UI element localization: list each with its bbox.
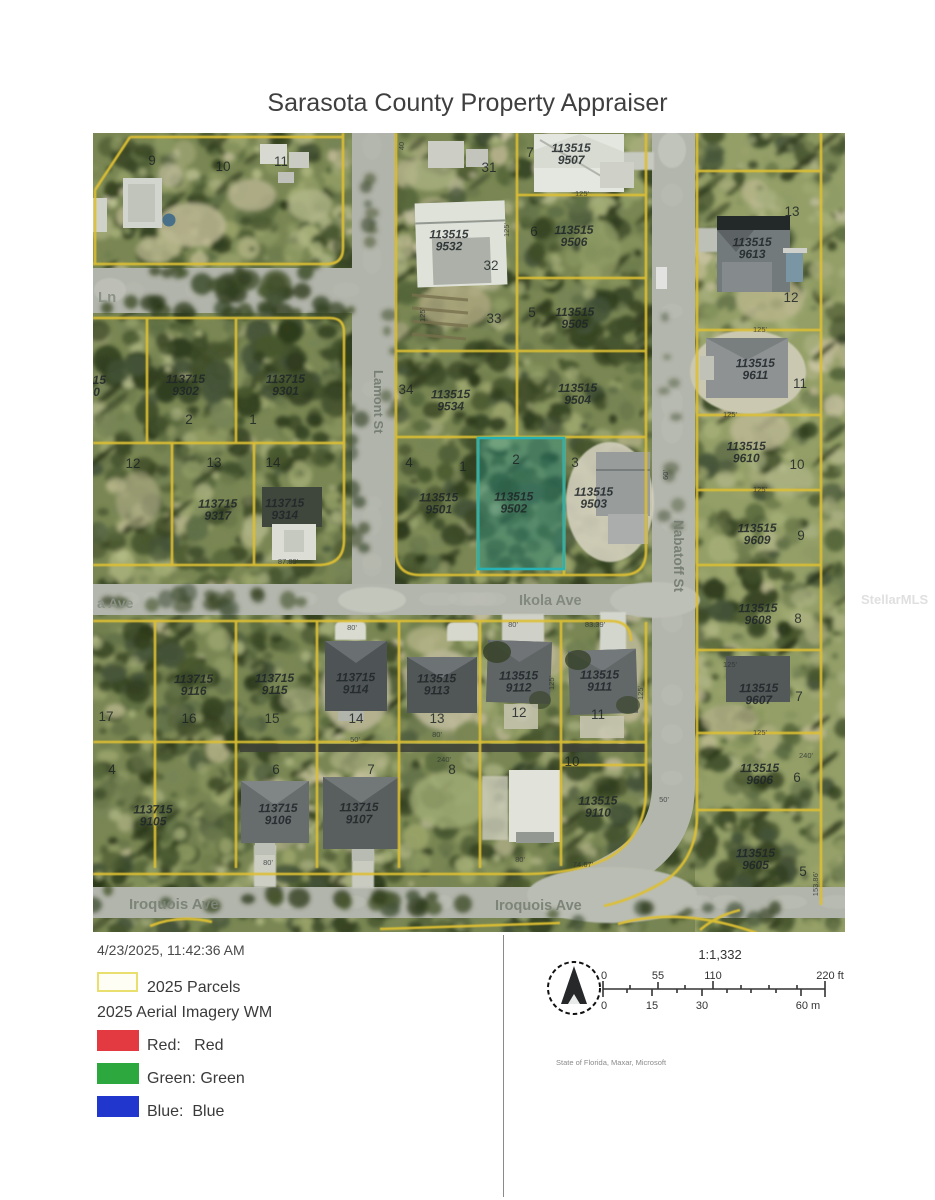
- svg-text:55: 55: [652, 970, 664, 982]
- svg-text:30: 30: [696, 1000, 708, 1012]
- svg-text:60 m: 60 m: [796, 1000, 820, 1012]
- svg-text:0: 0: [601, 970, 607, 982]
- svg-text:110: 110: [704, 970, 722, 982]
- svg-text:15: 15: [646, 1000, 658, 1012]
- svg-text:0: 0: [601, 1000, 607, 1012]
- svg-text:220 ft: 220 ft: [816, 970, 844, 982]
